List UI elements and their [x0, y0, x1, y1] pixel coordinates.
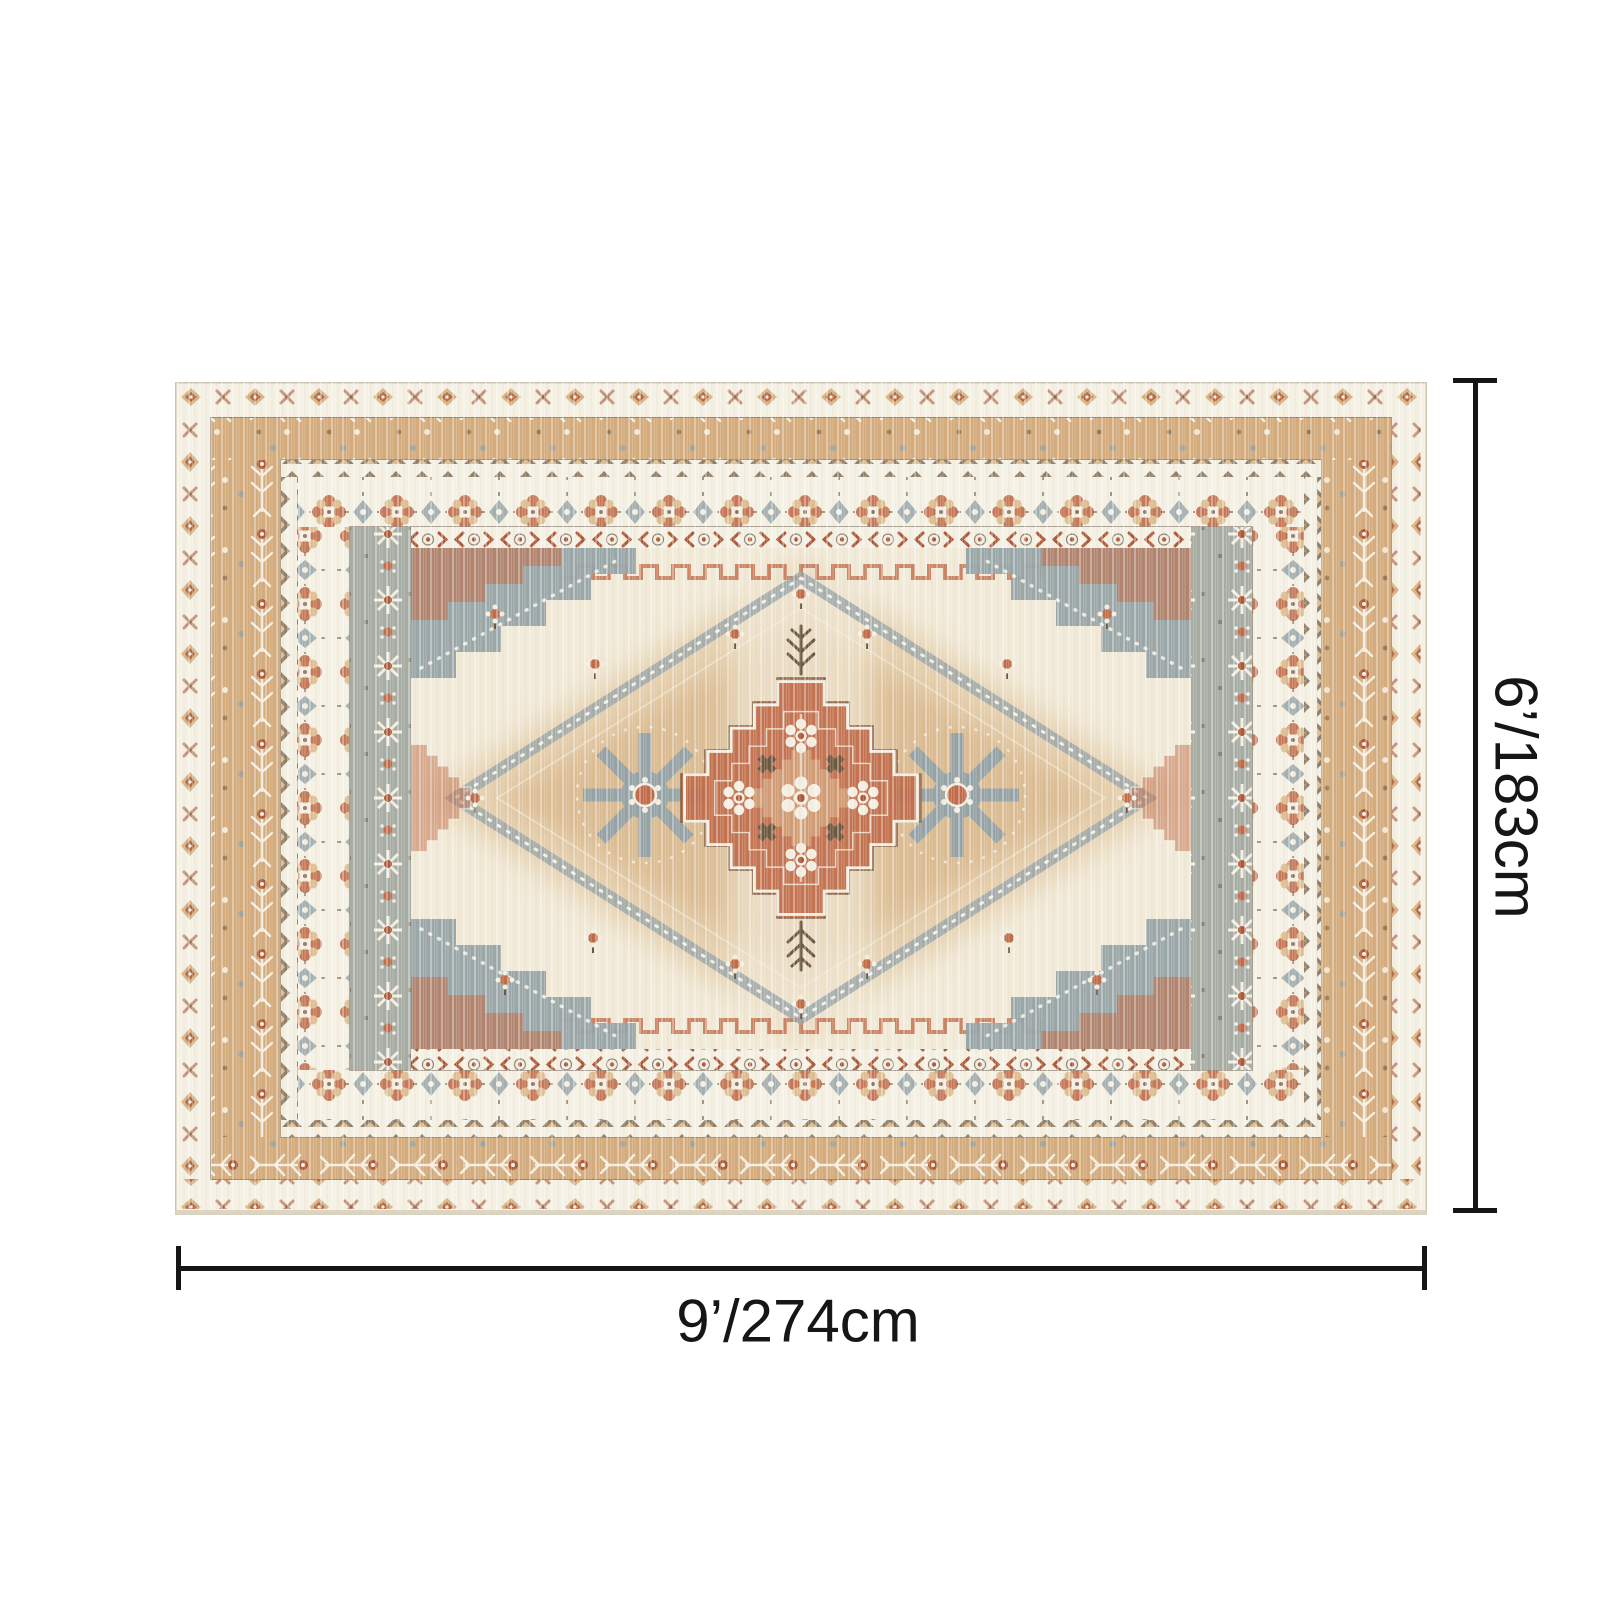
rug-bottom-edge: [175, 1210, 1427, 1215]
height-dimension-cap-top: [1453, 378, 1497, 383]
width-dimension-cap-left: [176, 1246, 181, 1290]
height-dimension-line: [1473, 380, 1478, 1213]
rug-image: [175, 382, 1427, 1215]
product-image-canvas: 6’/183cm 9’/274cm: [0, 0, 1600, 1600]
width-dimension-cap-right: [1422, 1246, 1427, 1290]
rug-svg: [175, 382, 1427, 1215]
width-dimension-line: [176, 1266, 1427, 1271]
width-dimension-label: 9’/274cm: [676, 1287, 919, 1356]
height-dimension-cap-bottom: [1453, 1208, 1497, 1213]
height-dimension-label: 6’/183cm: [1482, 675, 1551, 918]
distress-overlay: [175, 382, 1427, 1215]
